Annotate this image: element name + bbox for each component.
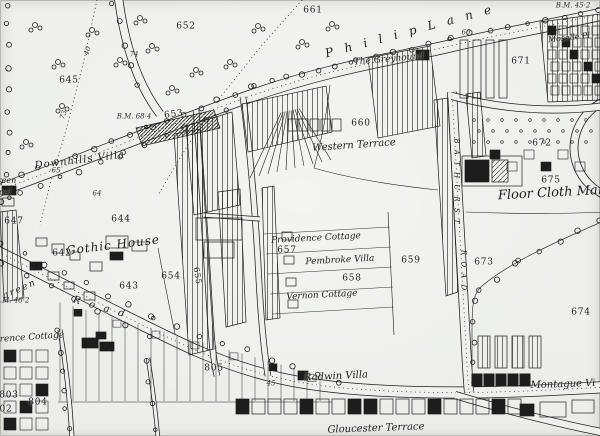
contour-64: 64 — [93, 191, 102, 198]
parcel-672: 672 — [532, 140, 552, 149]
floor-cloth-manufactory: Floor Cloth Man — [498, 184, 600, 203]
parcel-805: 805 — [204, 365, 224, 374]
contour-74: 74 — [130, 52, 139, 59]
chapel-fragment: pel — [0, 189, 11, 197]
parcel-653: 653 — [164, 109, 185, 121]
road-bathurst-upper: B A T H U R S T — [453, 138, 460, 225]
parcel-645: 645 — [59, 77, 79, 86]
distance-60: 60 — [462, 30, 471, 37]
parcel-643: 643 — [119, 283, 139, 292]
contour-40: 40 — [83, 46, 93, 57]
parcel-803: 803 — [0, 392, 19, 401]
parcel-654: 654 — [161, 273, 181, 282]
parcel-659: 659 — [401, 257, 421, 266]
parcel-660: 660 — [351, 120, 371, 129]
montague-villas: Montague Vi — [530, 379, 595, 391]
map-canvas[interactable]: P h i l i p L a n eThe GreyhoundWestern … — [0, 0, 600, 436]
parcel-642: 642 — [52, 250, 72, 259]
parcel-673: 673 — [474, 259, 494, 268]
contour-73: 73 — [59, 110, 69, 121]
cottage-name-fragment: rence Cottage — [0, 331, 65, 344]
parcel-661: 661 — [303, 7, 323, 16]
contour-65: ·65 — [49, 168, 60, 175]
moselle-place: Moselle Pl — [548, 32, 591, 44]
road-west-green: R o a d — [71, 295, 128, 320]
parcel-804: 804 — [28, 399, 48, 408]
providence-cottage: Providence Cottage — [271, 232, 361, 246]
road-bathurst-lower: R O A D — [460, 250, 467, 292]
parcel-671: 671 — [511, 58, 531, 67]
parcel-674: 674 — [571, 309, 591, 318]
parcel-644: 644 — [111, 216, 131, 225]
gloucester-terrace: Gloucester Terrace — [327, 422, 424, 435]
map-labels: P h i l i p L a n eThe GreyhoundWestern … — [0, 0, 600, 436]
parcel-652: 652 — [176, 23, 196, 32]
green-fragment: reen — [0, 177, 16, 185]
benchmark-45-2: B.M. 45·2 — [556, 3, 591, 10]
pembroke-villa: Pembroke Villa — [305, 255, 374, 268]
parcel-675: 675 — [541, 177, 561, 186]
distance-45: 45 — [267, 381, 276, 388]
parcel-655: 655 — [192, 267, 203, 286]
benchmark-68-4: B.M. 68·4 — [117, 114, 152, 121]
parcel-657: 657 — [277, 247, 297, 256]
parcel-802-fragment: 02 — [0, 406, 13, 415]
benchmark-46-2: B.M. 46·2 — [0, 298, 29, 305]
gothic-house: Gothic House — [65, 233, 160, 256]
western-terrace: Western Terrace — [312, 138, 396, 154]
vernon-cottage: Vernon Cottage — [286, 290, 358, 303]
radwin-villa: Radwin Villa — [304, 370, 369, 383]
downhills-villa: Downhills Villa — [34, 150, 126, 171]
parcel-647: 647 — [4, 218, 24, 227]
parcel-658: 658 — [342, 275, 362, 284]
pub-the-greyhound: The Greyhound — [354, 52, 425, 67]
